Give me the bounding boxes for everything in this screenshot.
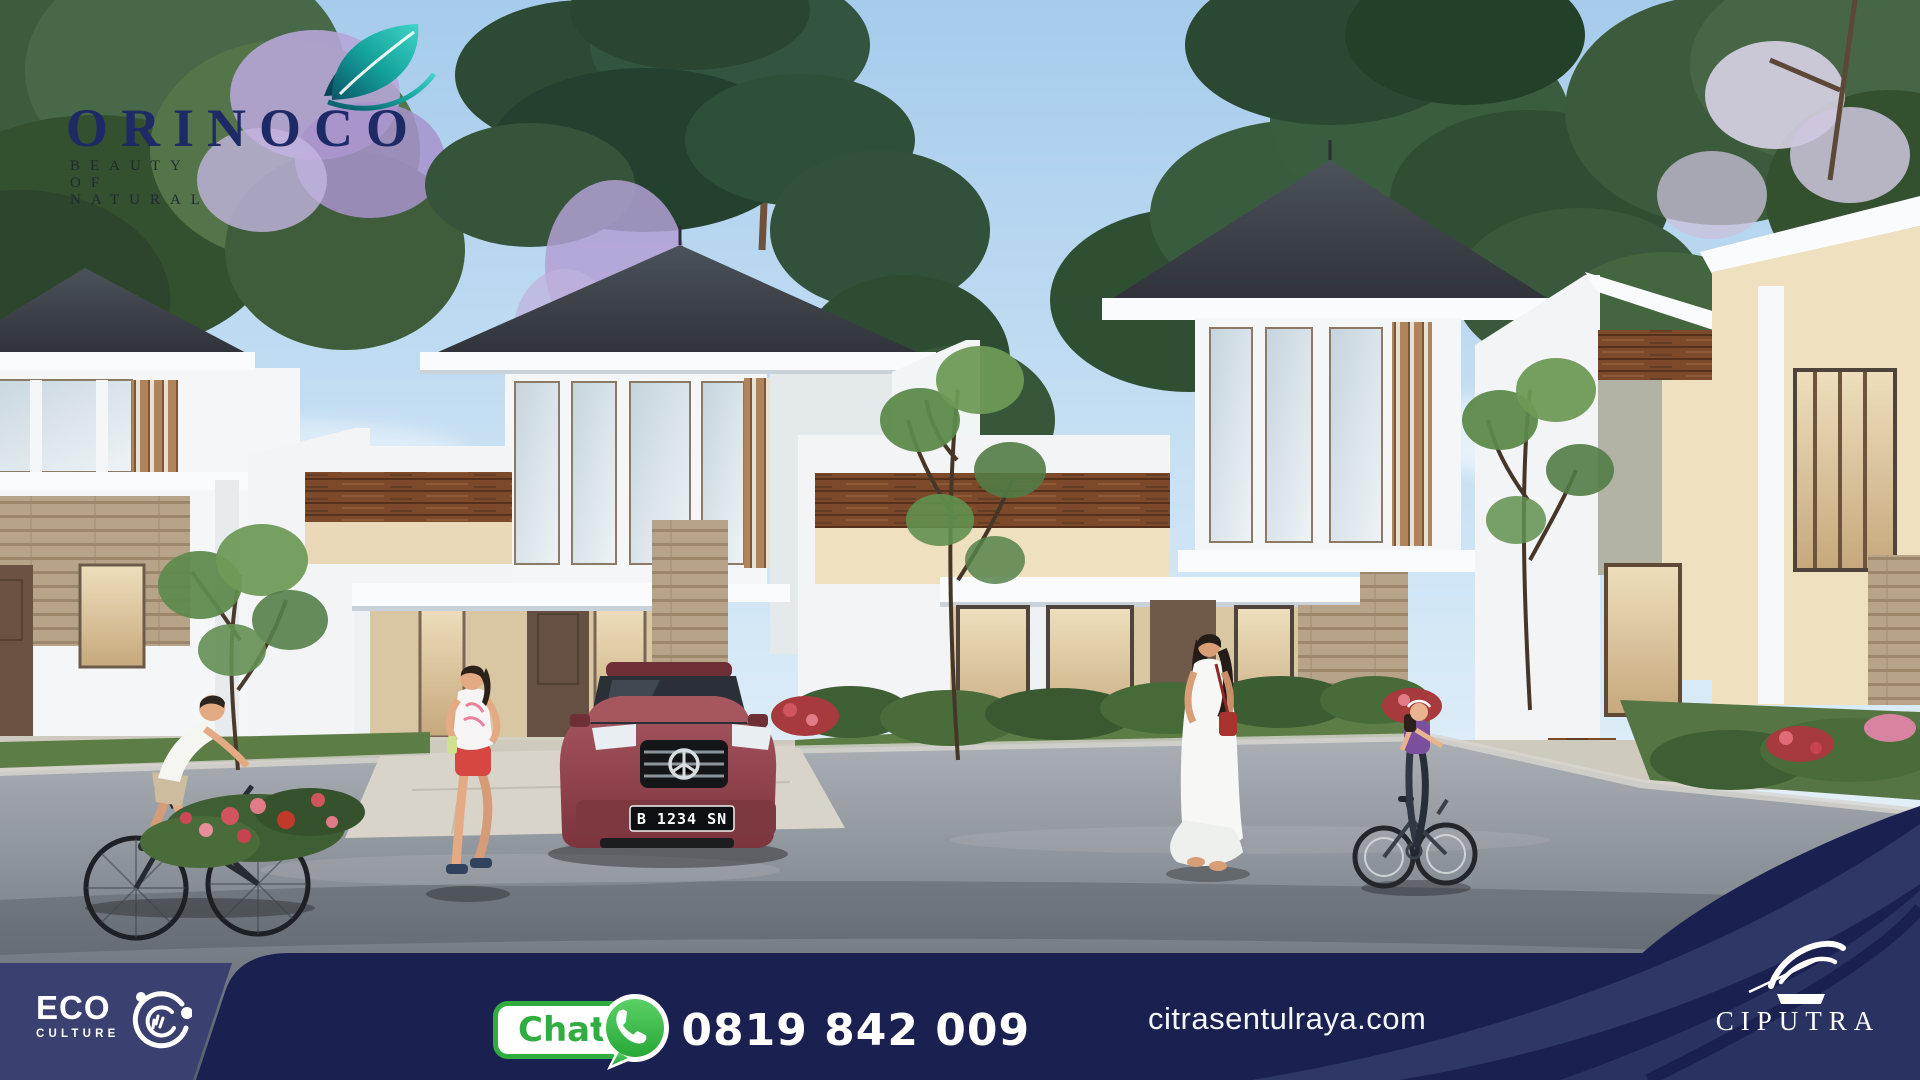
street-scene-render: B 1234 SN: [0, 0, 1920, 1080]
whatsapp-icon[interactable]: [597, 992, 673, 1074]
developer-name: CIPUTRA: [1698, 1006, 1898, 1037]
banner: B 1234 SN: [0, 0, 1920, 1080]
ciputra-swoosh-icon: [1743, 934, 1853, 1006]
phone-number[interactable]: 0819 842 009: [681, 1005, 1030, 1056]
eco-label: ECO: [36, 992, 120, 1024]
car-license-plate: B 1234 SN: [637, 810, 727, 828]
culture-label: CULTURE: [36, 1028, 120, 1040]
chat-contact: Chat 0819 842 009: [493, 986, 1030, 1074]
brand-tagline: BEAUTY OF NATURAL: [70, 158, 210, 209]
eco-swirl-icon: [128, 990, 192, 1054]
chat-button-label: Chat: [518, 1010, 606, 1050]
website-link[interactable]: citrasentulraya.com: [1148, 998, 1426, 1040]
ciputra-logo: CIPUTRA: [1698, 934, 1898, 1037]
brand-name: ORINOCO: [66, 100, 421, 156]
house-right-b: [1700, 196, 1920, 705]
eco-culture-text: ECO CULTURE: [36, 992, 120, 1040]
eco-culture-logo: ECO CULTURE: [36, 992, 192, 1054]
